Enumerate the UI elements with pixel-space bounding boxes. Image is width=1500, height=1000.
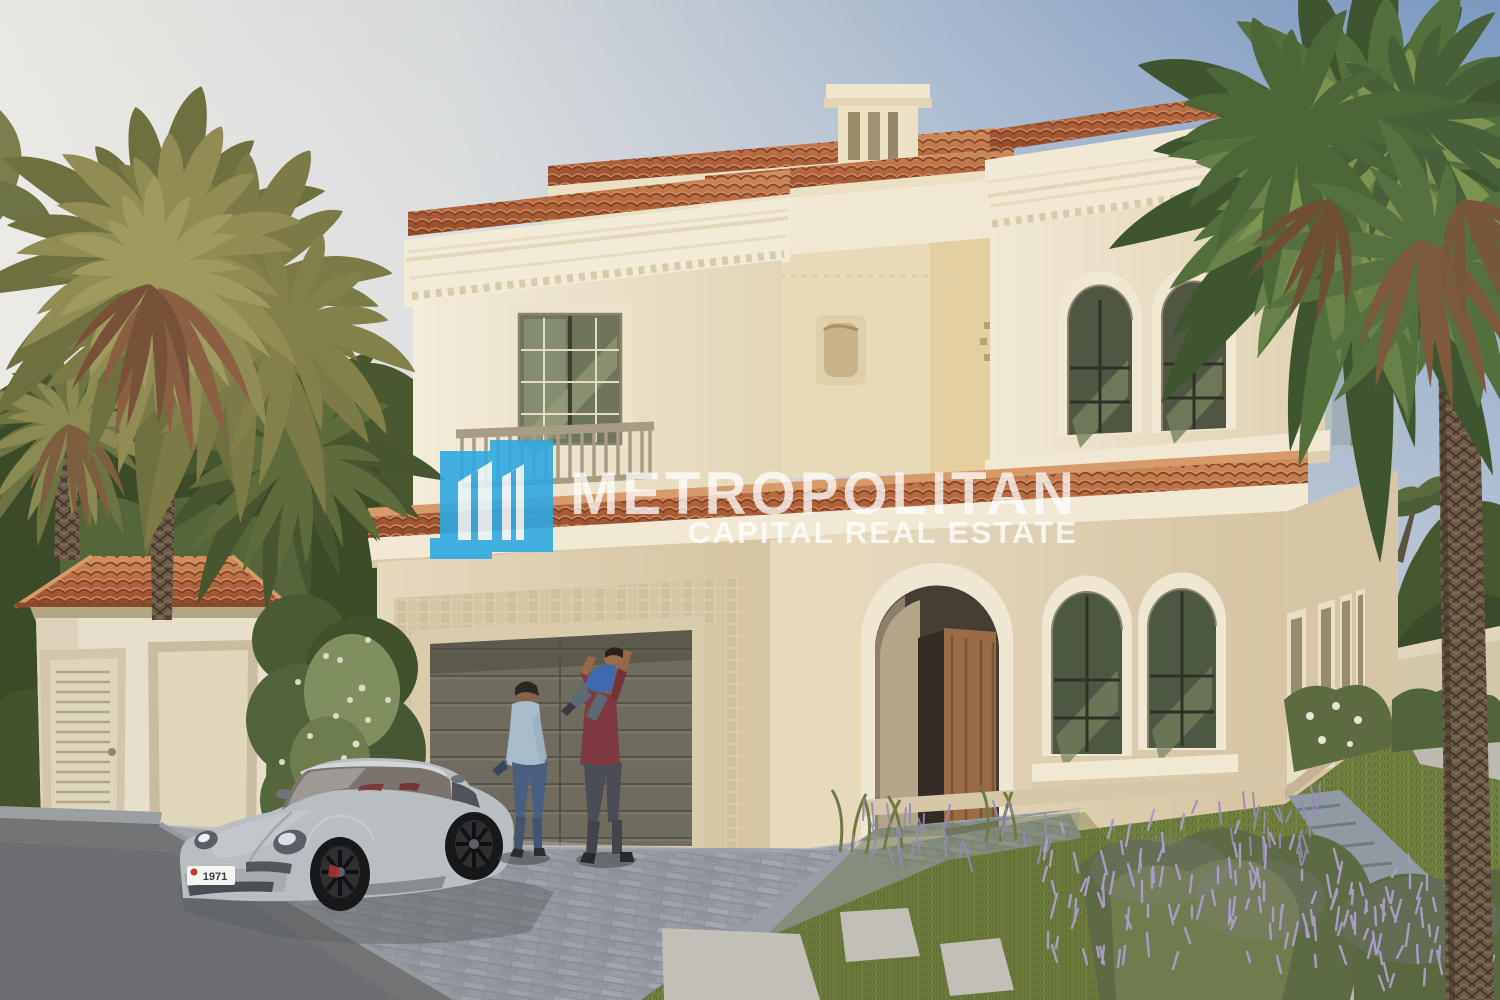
svg-text:1971: 1971 — [203, 871, 227, 883]
svg-text:CAPITAL REAL ESTATE: CAPITAL REAL ESTATE — [688, 515, 1078, 550]
